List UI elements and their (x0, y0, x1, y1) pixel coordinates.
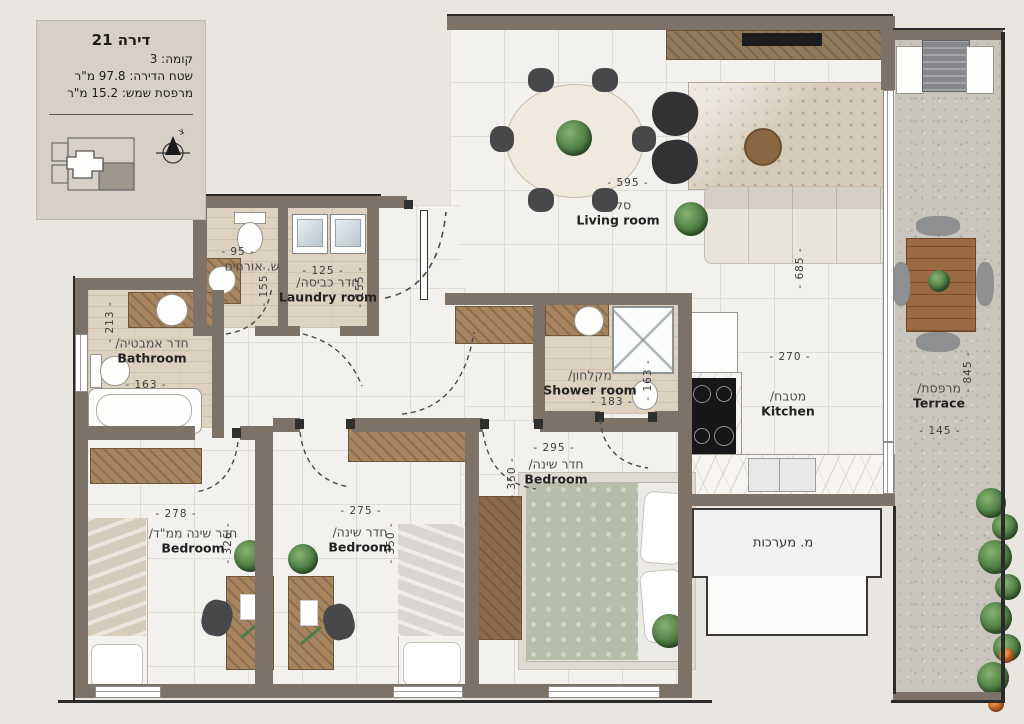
wall (352, 418, 465, 432)
window (95, 686, 161, 698)
room-label-en: Kitchen (761, 404, 815, 419)
room-label-guest-wc: ש. אורחים (225, 260, 280, 275)
fridge (686, 312, 738, 374)
wall (75, 278, 207, 290)
bed-blanket (86, 518, 146, 636)
ac-unit (966, 46, 994, 94)
dim-mamad-height: - 326 - (222, 522, 234, 563)
dim-living-height: - 685 - (794, 247, 806, 288)
wall (465, 418, 479, 696)
wall (340, 326, 379, 336)
outline-edge (58, 700, 712, 703)
room-label-bathroom: חדר אמבטיה/ Bathroom (109, 336, 195, 366)
wall (447, 16, 893, 30)
wall (255, 426, 273, 696)
hall-closet (455, 306, 535, 344)
outline-edge (447, 14, 893, 16)
dryer-glass (335, 219, 361, 247)
door-jamb (534, 419, 543, 429)
wall (893, 692, 1003, 700)
dim-shower-height: - 163 - (642, 359, 654, 400)
floor-plan-canvas: סלון/ Living room מטבח/ Kitchen ש. אורחי… (0, 0, 1024, 724)
bed-pillow (91, 644, 143, 688)
room-label-systems: מ. מערכות (753, 535, 813, 550)
apartment-title: דירה 21 (49, 31, 193, 49)
room-label-en: Bedroom (524, 472, 587, 487)
dim-living-width: - 595 - (607, 177, 648, 189)
terrace-plant (992, 514, 1018, 540)
dim-shower-width: - 183 - (591, 396, 632, 408)
door-jamb (346, 419, 355, 429)
north-arrow-icon: צ (153, 125, 193, 173)
area-line: שטח הדירה: 97.8 מ"ר (49, 69, 193, 83)
room-label-en: Bathroom (117, 351, 186, 366)
terrace-area-line: מרפסת שמש: 15.2 מ"ר (49, 86, 193, 100)
room-label-en: Living room (576, 213, 659, 228)
dim-laundry-height: - 155 - (354, 266, 366, 307)
wall (678, 494, 895, 506)
room-label-en: Bedroom (328, 540, 391, 555)
room-label-he: סלון/ (605, 198, 631, 213)
dim-bathroom-height: - 213 - (104, 301, 116, 342)
wall (678, 293, 692, 696)
cooktop (688, 378, 736, 456)
room-label-living: סלון/ Living room (576, 198, 659, 228)
info-divider (49, 114, 193, 115)
systems-room-lower (706, 576, 868, 636)
dim-bathroom-width: - 163 - (125, 379, 166, 391)
room-label-kitchen: מטבח/ Kitchen (761, 389, 815, 419)
outline-edge (73, 276, 75, 702)
bathtub-inner (96, 394, 192, 427)
wall (379, 196, 407, 208)
window (393, 686, 463, 698)
shower-sink (574, 306, 604, 336)
bed-blanket (526, 482, 638, 660)
wall (533, 411, 600, 423)
floor-line: קומה: 3 (49, 52, 193, 66)
terrace-plant (980, 602, 1012, 634)
kitchen-sink (748, 458, 816, 492)
living-rug (688, 82, 886, 190)
wardrobe (90, 448, 202, 484)
desk-paper (300, 600, 318, 626)
outline-edge (193, 194, 381, 196)
door-jamb (232, 428, 241, 438)
wardrobe (478, 496, 522, 640)
coffee-table (744, 128, 782, 166)
wall (367, 196, 379, 336)
outline-edge (1001, 32, 1005, 703)
dining-chair (528, 188, 554, 212)
terrace-chair (916, 332, 960, 352)
window (75, 334, 88, 392)
terrace-plant (978, 540, 1012, 574)
door-jamb (648, 412, 657, 422)
dining-chair (592, 68, 618, 92)
tv-screen (742, 33, 822, 46)
bed-pillow (403, 642, 461, 686)
ac-condenser (922, 40, 970, 92)
outline-edge (893, 506, 896, 694)
terrace-chair (976, 262, 994, 306)
room-label-terrace: מרפסת/ Terrace (913, 381, 965, 411)
window (548, 686, 660, 698)
dim-master-height: - 350 - (506, 457, 518, 498)
wall (212, 290, 224, 438)
dining-chair (632, 126, 656, 152)
door-jamb (595, 412, 604, 422)
terrace-plant (995, 574, 1021, 600)
dim-laundry-width: - 125 - (302, 265, 343, 277)
dim-middle-height: - 350 - (385, 522, 397, 563)
room-label-shower: מקלחון/ Shower room (543, 368, 636, 398)
plant (674, 202, 708, 236)
wall (75, 426, 195, 440)
dim-master-width: - 295 - (533, 442, 574, 454)
room-label-he: חדר כביסה/ (296, 275, 359, 290)
ac-unit (896, 46, 924, 94)
dim-terrace-height: - 845 - (962, 351, 974, 392)
wall (533, 293, 545, 423)
building-key-map (49, 133, 141, 199)
dim-middle-width: - 275 - (340, 505, 381, 517)
room-label-bedroom-master: חדר שינה/ Bedroom (524, 457, 587, 487)
room-label-he: חדר שינה/ (332, 525, 387, 540)
outline-edge (891, 700, 1005, 703)
terrace-floor (895, 38, 1002, 698)
window (883, 442, 894, 494)
terrace-chair (916, 216, 960, 236)
dining-chair (528, 68, 554, 92)
washer-glass (297, 219, 323, 247)
table-plant (556, 120, 592, 156)
entry-door-leaf (420, 210, 428, 300)
room-label-he: מקלחון/ (568, 368, 612, 383)
room-label-he: מ. מערכות (753, 535, 813, 550)
dim-terrace-width: - 145 - (919, 425, 960, 437)
door-jamb (295, 419, 304, 429)
bathroom-sink (156, 294, 188, 326)
dim-guest-wc-height: - 155 - (258, 265, 270, 306)
room-label-bedroom-middle: חדר שינה/ Bedroom (328, 525, 391, 555)
table-plant (928, 270, 950, 292)
plant (288, 544, 318, 574)
dim-kitchen-width: - 270 - (769, 351, 810, 363)
wall (445, 293, 692, 305)
window (883, 90, 894, 442)
room-label-he: חדר שינה/ (528, 457, 583, 472)
wall (283, 326, 300, 336)
wall (255, 326, 283, 336)
dining-chair (490, 126, 514, 152)
outline-edge (893, 28, 1005, 30)
room-label-en: Terrace (913, 396, 965, 411)
room-label-he: ש. אורחים (225, 260, 280, 275)
north-letter: צ (177, 126, 186, 137)
dim-mamad-width: - 278 - (155, 508, 196, 520)
terrace-chair (892, 262, 910, 306)
room-label-he: מרפסת/ (917, 381, 961, 396)
room-label-he: חדר אמבטיה/ (115, 336, 188, 351)
door-jamb (404, 200, 413, 209)
dim-guest-wc-width: - 95 - (221, 246, 255, 258)
room-label-he: מטבח/ (770, 389, 806, 404)
wall (893, 30, 1003, 40)
wall (655, 411, 692, 423)
door-jamb (480, 419, 489, 429)
room-label-en: Bedroom (161, 541, 224, 556)
apartment-info-box: דירה 21 קומה: 3 שטח הדירה: 97.8 מ"ר מרפס… (36, 20, 206, 220)
bed-blanket (398, 524, 464, 636)
